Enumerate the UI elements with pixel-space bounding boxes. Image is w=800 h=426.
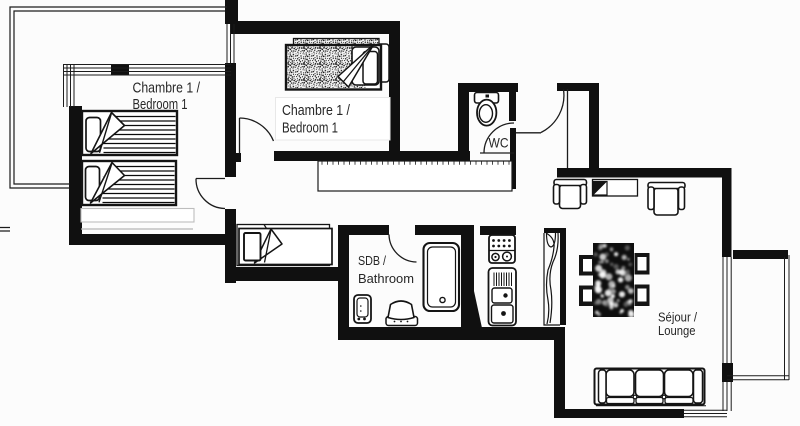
svg-text:SDB /: SDB / bbox=[358, 253, 386, 268]
svg-text:Lounge: Lounge bbox=[658, 323, 696, 338]
svg-text:Chambre 1 /: Chambre 1 / bbox=[133, 81, 201, 97]
svg-text:Bedroom 1: Bedroom 1 bbox=[133, 97, 188, 113]
svg-text:Bathroom: Bathroom bbox=[358, 271, 414, 286]
svg-text:Chambre 1 /: Chambre 1 / bbox=[282, 103, 351, 119]
svg-text:Bedroom 1: Bedroom 1 bbox=[282, 121, 338, 137]
svg-text:WC: WC bbox=[489, 135, 509, 151]
